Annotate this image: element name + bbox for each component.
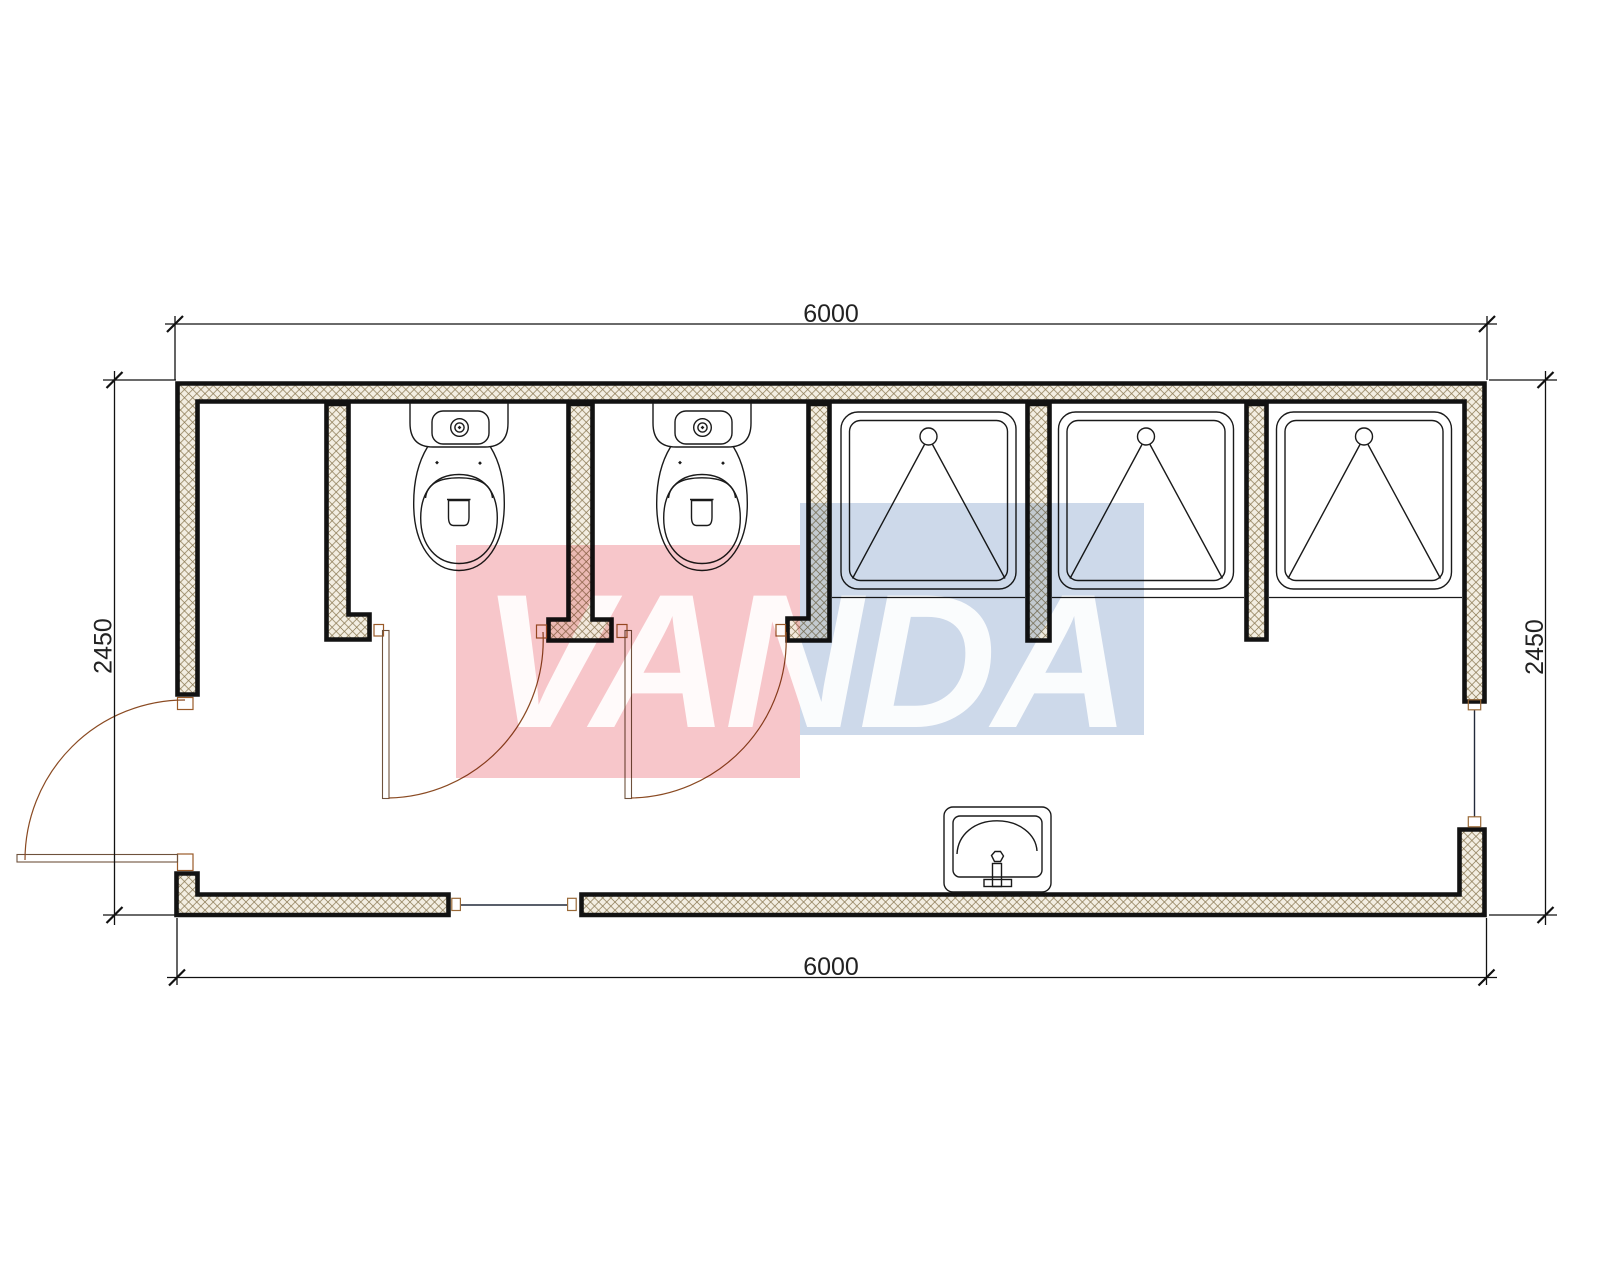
- svg-text:6000: 6000: [803, 953, 859, 981]
- svg-text:VANDA: VANDA: [482, 555, 1127, 768]
- svg-text:6000: 6000: [803, 300, 859, 328]
- svg-text:2450: 2450: [1521, 619, 1549, 675]
- svg-text:2450: 2450: [90, 618, 118, 674]
